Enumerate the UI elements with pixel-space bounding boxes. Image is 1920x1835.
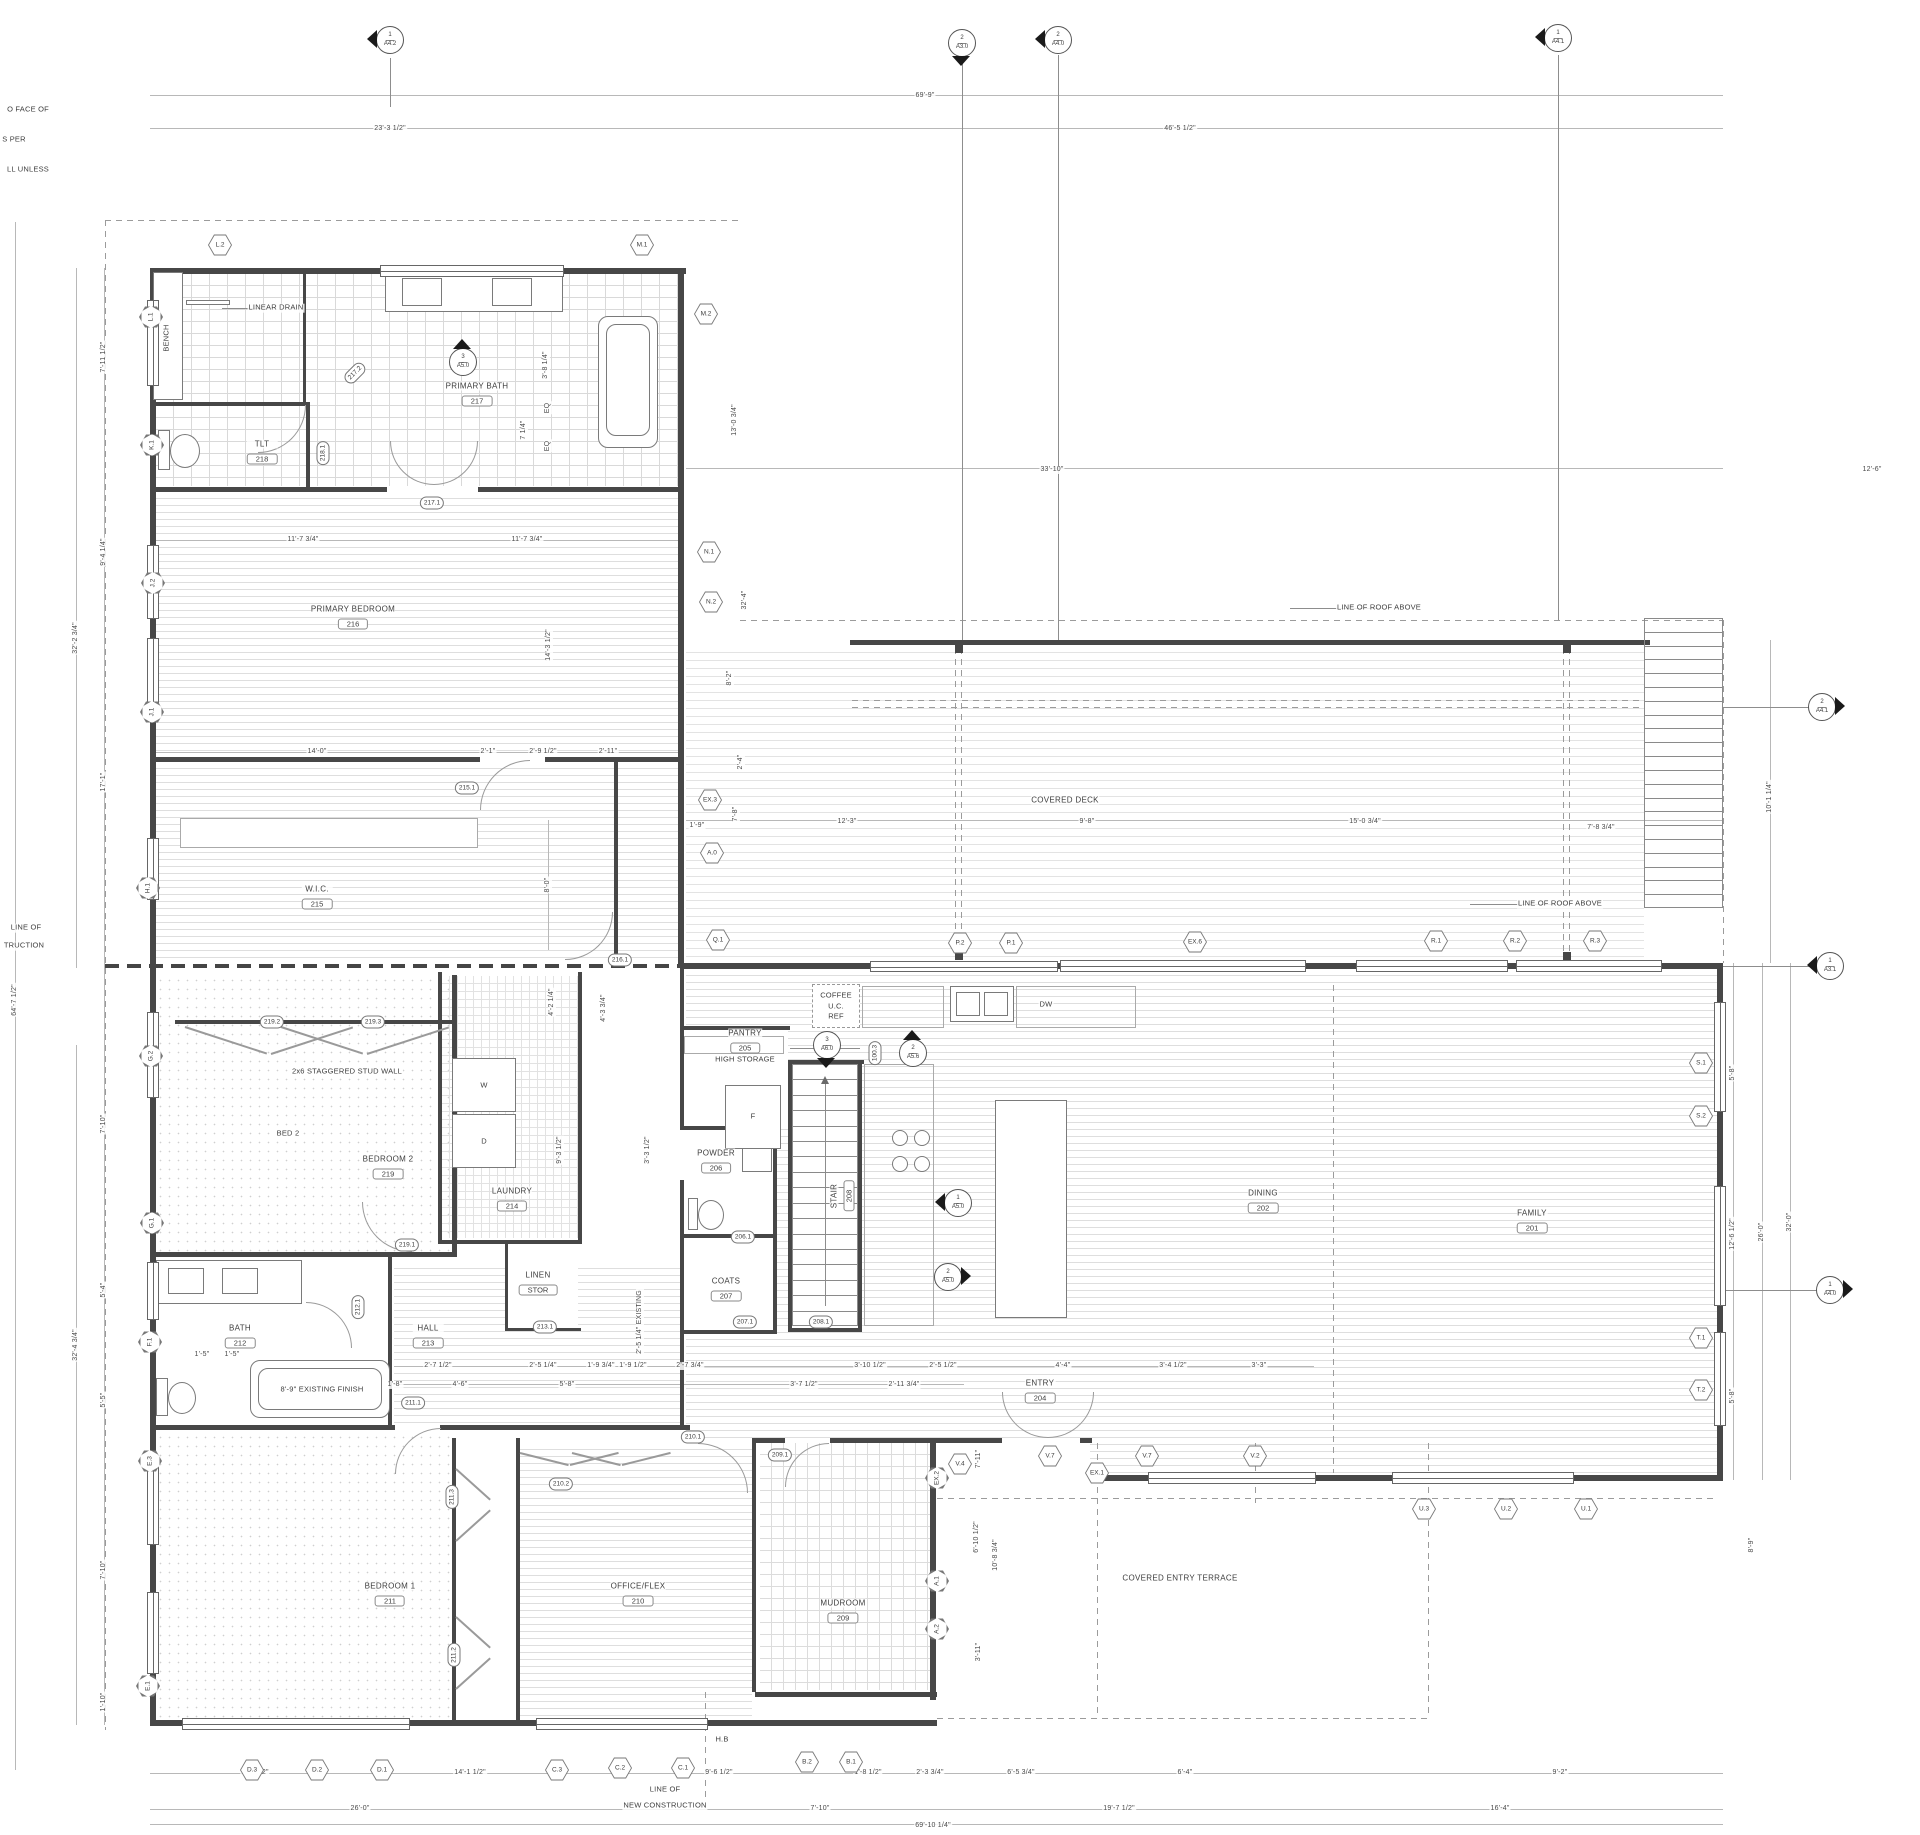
window (870, 961, 1058, 972)
grid-bubble: C.2 (608, 1758, 632, 1779)
dimension-text: 11'-7 3/4" (511, 536, 544, 544)
exterior-stair-tread (1644, 784, 1723, 785)
annotation-text: LINE OF ROOF ABOVE (1336, 604, 1422, 613)
wall (452, 1438, 456, 1725)
door-tag: 211.1 (401, 1397, 425, 1410)
dimension-text: 1'-9" (689, 822, 706, 830)
dimension-text: 7'-11" (975, 1449, 983, 1470)
stair-tread (792, 1156, 858, 1157)
dimension-text: 3'-10 1/2" (853, 1362, 887, 1370)
dimension-text: 17'-1" (100, 771, 108, 792)
room-name: STAIR (830, 1181, 839, 1212)
grid-bubble: N.2 (699, 592, 723, 613)
section-arrow-icon (453, 339, 471, 349)
section-marker-circle: 2A5.6 (899, 1039, 927, 1067)
wall (788, 1328, 862, 1332)
room-number: 205 (730, 1043, 761, 1054)
room-label: MUDROOM209 (820, 1599, 865, 1626)
dimension-text: 3'-11" (975, 1642, 983, 1663)
room-label: COVERED DECK (1031, 796, 1099, 805)
stair-tread (792, 1218, 858, 1219)
annotation-text: F (750, 1113, 757, 1122)
section-marker: 2A3.0 (948, 29, 976, 57)
stair-tread (792, 1172, 858, 1173)
dimension-text: 10'-8 3/4" (992, 1538, 1000, 1572)
section-marker-circle: 3A6.0 (813, 1031, 841, 1059)
dimension-text: 3'-7 1/2" (789, 1381, 818, 1389)
window (147, 1262, 159, 1320)
window (1392, 1472, 1574, 1484)
wall (438, 972, 442, 1244)
door-tag: 218.1 (317, 441, 330, 465)
room-number: 216 (338, 619, 369, 630)
dimension-text: 1'-8" (387, 1381, 404, 1389)
door-tag: 208.1 (809, 1316, 833, 1329)
room-name: FAMILY (1517, 1209, 1548, 1218)
dimension-text: 7'-10" (809, 1805, 830, 1813)
exterior-stair-tread (1644, 632, 1723, 633)
exterior-stair-tread (1644, 728, 1723, 729)
window (1714, 1002, 1726, 1112)
annotation-text: W (479, 1082, 488, 1091)
grid-bubble: V.7 (1038, 1446, 1062, 1467)
annotation-text: NEW CONSTRUCTION (622, 1802, 707, 1811)
dashed-line (105, 220, 740, 221)
dashed-line (852, 707, 1644, 708)
annotation-text: HIGH STORAGE (714, 1056, 776, 1065)
door-tag: 211.2 (448, 1643, 461, 1667)
door-tag: 211.3 (446, 1485, 459, 1509)
room-name: POWDER (697, 1149, 735, 1158)
annotation-text: D (480, 1138, 488, 1147)
exterior-stair-tread (1644, 867, 1723, 868)
room-label: PRIMARY BEDROOM216 (311, 605, 395, 632)
annotation-text: BED 2 (276, 1130, 301, 1139)
dashed-line (937, 1498, 1717, 1499)
room-label: W.I.C.215 (302, 885, 333, 912)
annotation-text: LINE OF (649, 1786, 682, 1795)
door-tag: 210.2 (549, 1478, 573, 1491)
exterior-stair-tread (1644, 853, 1723, 854)
section-arrow-icon (1807, 956, 1817, 974)
room-number: STOR (519, 1285, 558, 1296)
dimension-text: 6'-5 3/4" (1006, 1769, 1035, 1777)
dimension-text: 2'-5 1/4" (528, 1362, 557, 1370)
wall (682, 1234, 775, 1238)
wall (150, 1252, 457, 1257)
section-marker: 1A3.1 (1816, 952, 1844, 980)
fixture (180, 818, 478, 848)
grid-bubble: U.1 (1574, 1499, 1598, 1520)
dimension-text: 26'-0" (1758, 1221, 1766, 1242)
room-name: MUDROOM (820, 1599, 865, 1608)
door-tag: 212.1 (352, 1295, 365, 1319)
grid-bubble: V.4 (948, 1454, 972, 1475)
reference-line (962, 60, 963, 640)
annotation-text: U.C. (827, 1003, 845, 1012)
door-tag: 213.1 (533, 1321, 557, 1334)
dimension-text: 2'-11 3/4" (888, 1381, 921, 1389)
fixture (1563, 952, 1571, 960)
exterior-stair-tread (1644, 673, 1723, 674)
annotation-text: REF (827, 1013, 845, 1022)
dimension-text: 32'-4" (741, 589, 749, 610)
room-label: STAIR208 (830, 1181, 857, 1212)
dashed-line (1563, 648, 1564, 960)
door-leaf (455, 1657, 491, 1689)
room-number: 218 (247, 454, 278, 465)
room-number: 219 (373, 1169, 404, 1180)
section-arrow-icon (1535, 28, 1545, 46)
fixture (168, 1382, 196, 1414)
dimension-text: 7 1/4" (520, 419, 528, 440)
room-label: BEDROOM 2219 (363, 1155, 414, 1182)
room-label: BEDROOM 1211 (365, 1582, 416, 1609)
reference-line (1058, 55, 1059, 640)
wall (682, 1330, 775, 1334)
room-number: 217 (462, 396, 493, 407)
door-tag: 209.1 (768, 1449, 792, 1462)
fixture (984, 992, 1008, 1016)
dimension-text: 1'-9 1/2" (618, 1362, 647, 1370)
exterior-stair-tread (1644, 701, 1723, 702)
grid-bubble: D.1 (370, 1760, 394, 1781)
room-number: 202 (1248, 1203, 1279, 1214)
dimension-text: 32'-0" (1786, 1211, 1794, 1232)
wall (516, 1438, 520, 1725)
room-number: 204 (1025, 1393, 1056, 1404)
annotation-text: COFFEE (819, 992, 853, 1001)
window (1060, 960, 1306, 972)
door-tag: 219.3 (361, 1016, 385, 1029)
dimension-text: 4'-4" (1055, 1362, 1072, 1370)
room-name: W.I.C. (302, 885, 333, 894)
stair-tread (792, 1249, 858, 1250)
wall (752, 1438, 756, 1692)
section-arrow-icon (367, 30, 377, 48)
room-name: HALL (413, 1324, 444, 1333)
room-label: HALL213 (413, 1324, 444, 1351)
room-number: 208 (844, 1181, 855, 1212)
fixture (892, 1156, 908, 1172)
floor-plan-sheet: O FACE OFS PERLL UNLESSLINE OFTRUCTIONBE… (0, 0, 1920, 1835)
dimension-text: 14'-1 1/2" (453, 1769, 487, 1777)
fixture (1563, 645, 1571, 653)
room-label: LAUNDRY214 (492, 1187, 532, 1214)
dimension-text: 1'-10" (100, 1691, 108, 1712)
dimension-text: 46'-5 1/2" (1163, 125, 1197, 133)
dashed-line (105, 220, 106, 1730)
dimension-text: 5'-8" (1729, 1388, 1737, 1405)
room-name: LAUNDRY (492, 1187, 532, 1196)
section-marker-circle: 2A4.0 (1044, 26, 1072, 54)
fixture (862, 986, 944, 1028)
stair-tread (792, 1295, 858, 1296)
grid-bubble: U.3 (1412, 1499, 1436, 1520)
room-name: BATH (225, 1324, 256, 1333)
stair-tread (792, 1110, 858, 1111)
exterior-stair-tread (1644, 880, 1723, 881)
section-marker: 1A4.2 (376, 26, 404, 54)
fixture (892, 1130, 908, 1146)
dimension-text: 1'-9 3/4" (586, 1362, 615, 1370)
section-marker: 1A4.1 (1544, 24, 1572, 52)
door-tag: 206.1 (731, 1231, 755, 1244)
room-number: 210 (623, 1596, 654, 1607)
grid-bubble: M.1 (630, 235, 654, 256)
room-name: TLT (247, 440, 278, 449)
sheet-note: LINE OF (10, 924, 43, 933)
window (1356, 960, 1508, 972)
dimension-text: 8'-9" (1748, 1537, 1756, 1554)
wall (440, 1425, 690, 1430)
dimension-text: EQ (544, 440, 552, 453)
dimension-text: 5'-5" (100, 1392, 108, 1409)
dimension-text: 14'-3 1/2" (545, 628, 553, 662)
room-label: TLT218 (247, 440, 278, 467)
fixture (1016, 986, 1136, 1028)
dimension-text: 8'-2" (726, 670, 734, 687)
fixture (914, 1130, 930, 1146)
dimension-text: 19'-7 1/2" (1102, 1805, 1136, 1813)
dimension-text: 2'-11" (598, 748, 619, 756)
grid-bubble: C.3 (545, 1760, 569, 1781)
room-name: PANTRY (728, 1029, 762, 1038)
door-tag: 207.1 (733, 1316, 757, 1329)
dimension-text: 23'-3 1/2" (373, 125, 407, 133)
dimension-text: 4'-2 1/4" (548, 987, 556, 1016)
stair-tread (792, 1234, 858, 1235)
exterior-stair-tread (1644, 646, 1723, 647)
room-number: 209 (828, 1613, 859, 1624)
annotation-text: DW (1039, 1001, 1054, 1010)
dashed-line (1333, 985, 1334, 1473)
wall (773, 1126, 777, 1334)
wall (614, 757, 618, 963)
exterior-stair-tread (1644, 756, 1723, 757)
stair-arrow (821, 1076, 829, 1084)
dimension-text: 4'-6" (452, 1381, 469, 1389)
dimension-text: 5'-8" (559, 1381, 576, 1389)
dimension-text: 2'-4" (737, 754, 745, 771)
fixture (170, 434, 200, 468)
dimension-text: 13'-0 3/4" (731, 403, 739, 437)
dimension-line (150, 540, 682, 541)
sheet-note: S PER (1, 136, 27, 145)
grid-bubble: D.3 (240, 1760, 264, 1781)
door-tag: 217.1 (420, 497, 444, 510)
section-marker-circle: 2A5.0 (934, 1263, 962, 1291)
sheet-note: LL UNLESS (6, 166, 50, 175)
dashed-line (1428, 1443, 1429, 1718)
dashed-line (1569, 648, 1570, 960)
exterior-stair-tread (1644, 687, 1723, 688)
fixture (914, 1156, 930, 1172)
window (1714, 1186, 1726, 1306)
door-tag: 219.2 (260, 1016, 284, 1029)
room-name: PRIMARY BATH (446, 382, 509, 391)
section-arrow-icon (903, 1030, 921, 1040)
room-label: FAMILY201 (1517, 1209, 1548, 1236)
door-tag: 100.3 (869, 1041, 882, 1065)
dimension-text: 7'-11 1/2" (100, 341, 108, 374)
reference-line (1558, 55, 1559, 620)
exterior-stair-tread (1644, 798, 1723, 799)
section-marker: 2A5.6 (899, 1039, 927, 1067)
dimension-text: 7'-10" (100, 1559, 108, 1580)
door-tag: 216.1 (608, 954, 632, 967)
dashed-line (937, 1718, 1430, 1719)
floor-area (156, 492, 678, 755)
dimension-text: 26'-0" (349, 1805, 370, 1813)
reference-line (1723, 966, 1818, 967)
room-name: DINING (1248, 1189, 1279, 1198)
room-number: 213 (413, 1338, 444, 1349)
room-number: 201 (1517, 1223, 1548, 1234)
dimension-text: 15'-0 3/4" (1348, 818, 1382, 826)
dashed-line (740, 620, 1723, 621)
room-label: BATH212 (225, 1324, 256, 1351)
grid-bubble: B.2 (795, 1752, 819, 1773)
annotation-text: LINE OF ROOF ABOVE (1517, 900, 1603, 909)
door-tag: 215.1 (455, 782, 479, 795)
dashed-line (1723, 620, 1724, 963)
section-arrow-icon (952, 56, 970, 66)
dimension-text: 12'-3" (836, 818, 857, 826)
door-leaf (455, 1616, 491, 1648)
section-marker-circle: 2A3.0 (948, 29, 976, 57)
dimension-line (394, 1384, 964, 1385)
dimension-text: 64'-7 1/2" (11, 983, 19, 1017)
floor-area (156, 1433, 452, 1718)
section-marker-circle: 1A4.0 (1816, 1276, 1844, 1304)
dimension-text: 5'-8" (1729, 1065, 1737, 1082)
dimension-text: 12'-6" (1861, 466, 1882, 474)
annotation-text: LINEAR DRAIN (248, 304, 305, 313)
fixture (955, 645, 963, 653)
window (147, 638, 159, 704)
wall (578, 972, 582, 1244)
dimension-text: 2'-5 1/4" EXISTING (636, 1289, 644, 1355)
dashed-line (852, 700, 1644, 701)
dimension-line (76, 268, 77, 968)
exterior-stair-tread (1644, 742, 1723, 743)
dimension-text: 32'-4 3/4" (72, 1328, 80, 1362)
room-label: ENTRY204 (1025, 1379, 1056, 1406)
room-number: 214 (497, 1201, 528, 1212)
dimension-text: 3'-8 1/4" (542, 350, 550, 379)
wall (478, 487, 682, 492)
section-marker: 1A4.0 (1816, 1276, 1844, 1304)
section-arrow-icon (935, 1193, 945, 1211)
fixture (688, 1198, 698, 1230)
dashed-line (1097, 1443, 1098, 1715)
room-label: PRIMARY BATH217 (446, 382, 509, 409)
dimension-text: 2'-9 1/2" (528, 748, 557, 756)
dimension-text: 1'-5" (194, 1351, 211, 1359)
window (147, 1592, 159, 1674)
fixture (186, 300, 230, 305)
exterior-stair-tread (1644, 839, 1723, 840)
fixture (956, 992, 980, 1016)
fixture (995, 1100, 1067, 1318)
room-label: OFFICE/FLEX210 (611, 1582, 666, 1609)
dashed-line (705, 1692, 706, 1812)
grid-bubble: D.2 (305, 1760, 329, 1781)
annotation-text: H.B (714, 1736, 729, 1745)
exterior-stair-tread (1644, 659, 1723, 660)
wall (150, 1425, 395, 1430)
room-name: BEDROOM 2 (363, 1155, 414, 1164)
section-marker-circle: 3A5.0 (449, 348, 477, 376)
dimension-text: 33'-10" (1039, 466, 1064, 474)
stair-tread (792, 1126, 858, 1127)
section-marker: 2A4.0 (1044, 26, 1072, 54)
section-marker-circle: 2A4.1 (1808, 693, 1836, 721)
dimension-text: 3'-3" (1251, 1362, 1268, 1370)
exterior-stair-tread (1644, 825, 1723, 826)
exterior-stair-tread (1644, 811, 1723, 812)
dimension-text: 6'-10 1/2" (973, 1520, 981, 1554)
grid-bubble: C.1 (671, 1758, 695, 1779)
dimension-text: 3'-4 1/2" (1158, 1362, 1187, 1370)
dimension-text: 1'-5" (224, 1351, 241, 1359)
room-number: 212 (225, 1338, 256, 1349)
window (380, 265, 564, 277)
room-number: 206 (701, 1163, 732, 1174)
window (1714, 1332, 1726, 1426)
floor-area (686, 645, 1644, 961)
fixture (222, 1268, 258, 1294)
dimension-text: 7'-8 3/4" (1586, 824, 1615, 832)
grid-bubble: L.2 (208, 235, 232, 256)
room-name: OFFICE/FLEX (611, 1582, 666, 1591)
fixture (698, 1200, 724, 1230)
section-arrow-icon (1035, 30, 1045, 48)
section-marker: 2A4.1 (1808, 693, 1836, 721)
dimension-text: 11'-7 3/4" (287, 536, 320, 544)
section-marker: 3A5.0 (449, 348, 477, 376)
wall (937, 1438, 1002, 1443)
stair-tread (792, 1311, 858, 1312)
door-tag: 210.1 (681, 1431, 705, 1444)
wall (680, 1180, 684, 1430)
dimension-text: 9'-3 1/2" (556, 1135, 564, 1164)
section-marker: 3A6.0 (813, 1031, 841, 1059)
exterior-stair-tread (1644, 770, 1723, 771)
dimension-text: 3'-3 1/2" (644, 1135, 652, 1164)
annotation-text: BENCH (163, 323, 172, 352)
dashed-line (961, 648, 962, 960)
dimension-text: 69'-10 1/4" (914, 1822, 952, 1830)
room-label: COATS207 (711, 1277, 742, 1304)
floor-area (1090, 969, 1717, 1473)
dimension-text: 9'-4 1/4" (100, 537, 108, 566)
fixture (156, 1378, 168, 1416)
window (1148, 1472, 1316, 1484)
fixture (864, 1064, 934, 1326)
dimension-line (76, 1045, 77, 1725)
exterior-stair-tread (1644, 715, 1723, 716)
dimension-text: 2'-7 3/4" (675, 1362, 704, 1370)
wall (755, 1692, 937, 1697)
dimension-text: 14'-0" (306, 748, 327, 756)
grid-bubble: N.1 (697, 542, 721, 563)
room-name: BEDROOM 1 (365, 1582, 416, 1591)
section-arrow-icon (1835, 697, 1845, 715)
dimension-text: 9'-8" (1079, 818, 1096, 826)
wall (505, 1243, 508, 1331)
